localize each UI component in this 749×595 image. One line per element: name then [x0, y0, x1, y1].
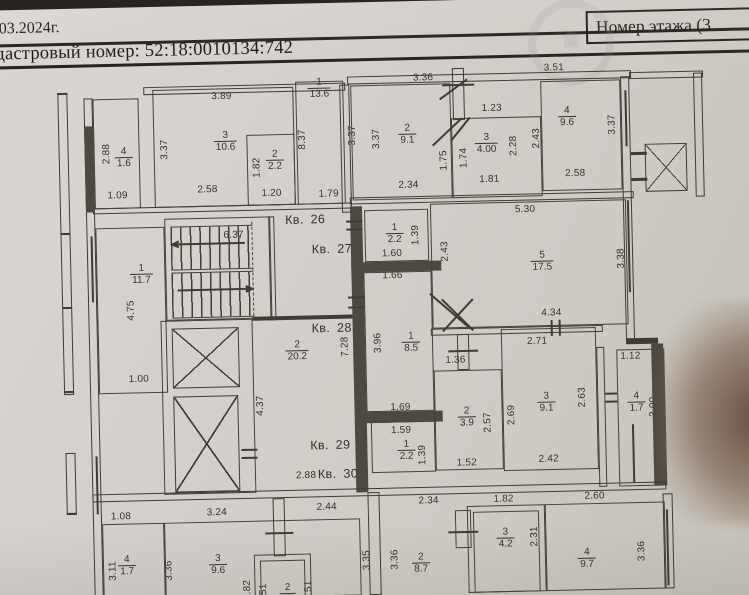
dimension-label: 3.36 [389, 549, 400, 570]
wall-double [693, 73, 705, 197]
dimension-label: 4.37 [255, 395, 266, 416]
wall-line [60, 233, 70, 235]
dimension-label: 1.82 [493, 493, 514, 504]
floor-plan-document-photo: 03.2024г. дастровый номер: 52:18:0010134… [0, 0, 749, 595]
wall [430, 199, 629, 328]
wall-line [64, 391, 74, 393]
wall-line [241, 449, 257, 451]
wall [364, 209, 429, 262]
wall-line [348, 306, 364, 308]
wall-line [62, 307, 72, 309]
wall-line [448, 350, 478, 353]
wall-double [452, 68, 465, 120]
apartment-label: Кв. 27 [312, 242, 352, 257]
wall [371, 421, 436, 473]
dimension-label: 2.44 [316, 501, 337, 512]
wall [95, 227, 168, 395]
dimension-label: 2.60 [584, 490, 605, 501]
dimension-label: 2.34 [418, 495, 439, 506]
dimension-label: 7.28 [339, 336, 350, 357]
wall [363, 271, 434, 413]
wall-line [57, 93, 67, 95]
wall [501, 327, 599, 471]
floor-plan-drawing: 3.892.881.093.372.581.821.208.371.793.36… [0, 0, 749, 595]
wall-solid [653, 348, 667, 485]
crossed-shaft [173, 395, 240, 492]
wall-line [551, 320, 553, 336]
wall [268, 216, 276, 320]
wall [451, 116, 543, 198]
tilted-document: 03.2024г. дастровый номер: 52:18:0010134… [0, 0, 749, 595]
dimension-label: 1.23 [481, 103, 502, 114]
dimension-label: 1.08 [111, 511, 132, 522]
wall [92, 98, 140, 209]
wall [260, 560, 306, 595]
wall-line [605, 401, 617, 403]
apartment-label: Кв. 30 [318, 466, 358, 481]
apartment-label: Кв. 28 [311, 321, 351, 336]
wall-line [631, 152, 647, 155]
wall [164, 216, 272, 320]
wall-double [273, 498, 286, 556]
room-number-area-label: 28.7 [412, 551, 430, 574]
crossed-shaft [172, 327, 240, 389]
wall-line [242, 457, 258, 459]
wall [473, 510, 541, 592]
room-number-area-label: 220.2 [285, 339, 309, 363]
wall-line [605, 393, 617, 395]
wall-double [367, 492, 381, 595]
wall-line [559, 320, 561, 336]
wall-line [67, 513, 77, 515]
wall-line [346, 228, 362, 230]
crossed-shaft [645, 143, 688, 192]
wall-double [57, 93, 74, 395]
dimension-label: 3.24 [207, 507, 228, 518]
wall [455, 510, 472, 548]
wall [102, 523, 166, 595]
wall-double [65, 453, 76, 515]
apartment-label: Кв. 26 [285, 212, 325, 227]
dimension-label: 2.88 [296, 470, 317, 481]
wall [545, 501, 667, 591]
wall-line [346, 220, 362, 222]
wall [540, 79, 622, 191]
wall-line [348, 296, 364, 298]
wall [434, 369, 504, 471]
wall-line [631, 178, 647, 181]
wall [246, 134, 296, 206]
wall [295, 81, 346, 205]
apartment-label: Кв. 29 [310, 438, 350, 453]
wall-solid [84, 126, 95, 212]
